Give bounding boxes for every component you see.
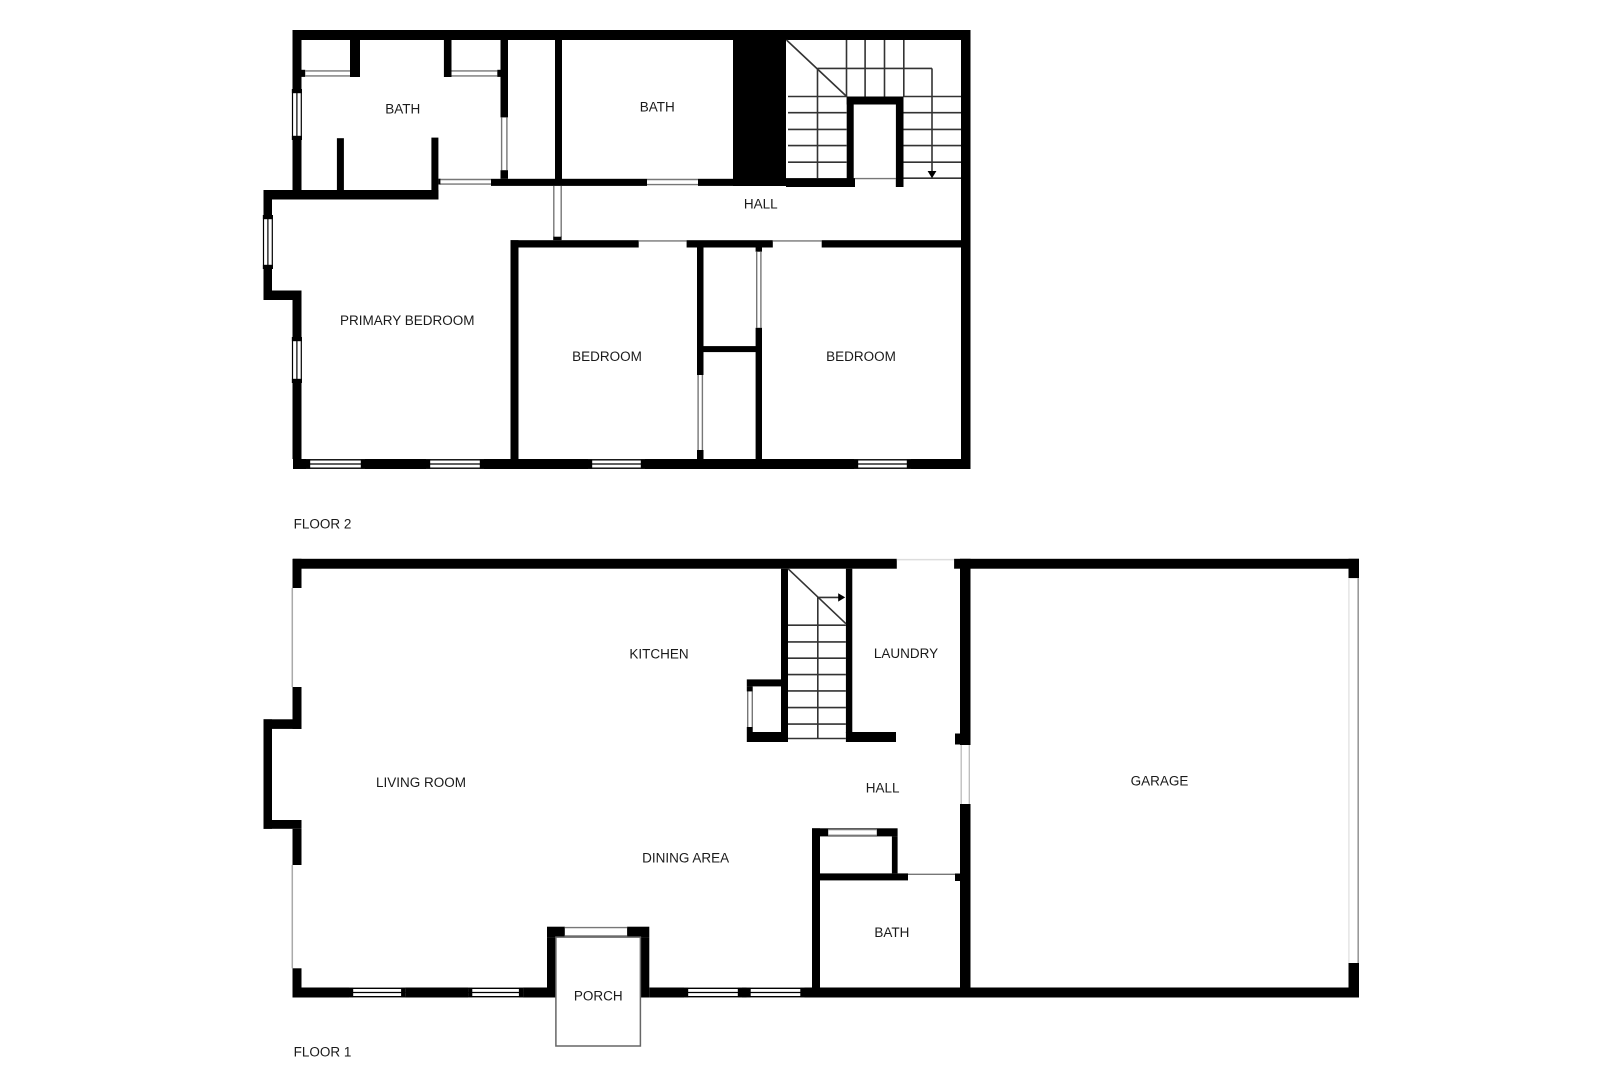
svg-text:PRIMARY BEDROOM: PRIMARY BEDROOM (340, 313, 475, 328)
svg-text:BEDROOM: BEDROOM (826, 349, 896, 364)
svg-text:HALL: HALL (744, 197, 778, 212)
svg-text:DINING AREA: DINING AREA (642, 850, 729, 865)
svg-text:LAUNDRY: LAUNDRY (874, 646, 938, 661)
svg-text:BEDROOM: BEDROOM (572, 349, 642, 364)
svg-text:LIVING ROOM: LIVING ROOM (376, 775, 466, 790)
svg-text:BATH: BATH (385, 101, 420, 116)
svg-text:BATH: BATH (640, 99, 675, 114)
svg-text:KITCHEN: KITCHEN (629, 647, 688, 662)
svg-text:FLOOR 2: FLOOR 2 (294, 517, 352, 532)
svg-text:FLOOR 1: FLOOR 1 (294, 1045, 352, 1060)
svg-text:PORCH: PORCH (574, 988, 623, 1003)
svg-text:BATH: BATH (874, 925, 909, 940)
svg-text:GARAGE: GARAGE (1131, 773, 1189, 788)
svg-text:HALL: HALL (866, 781, 900, 796)
